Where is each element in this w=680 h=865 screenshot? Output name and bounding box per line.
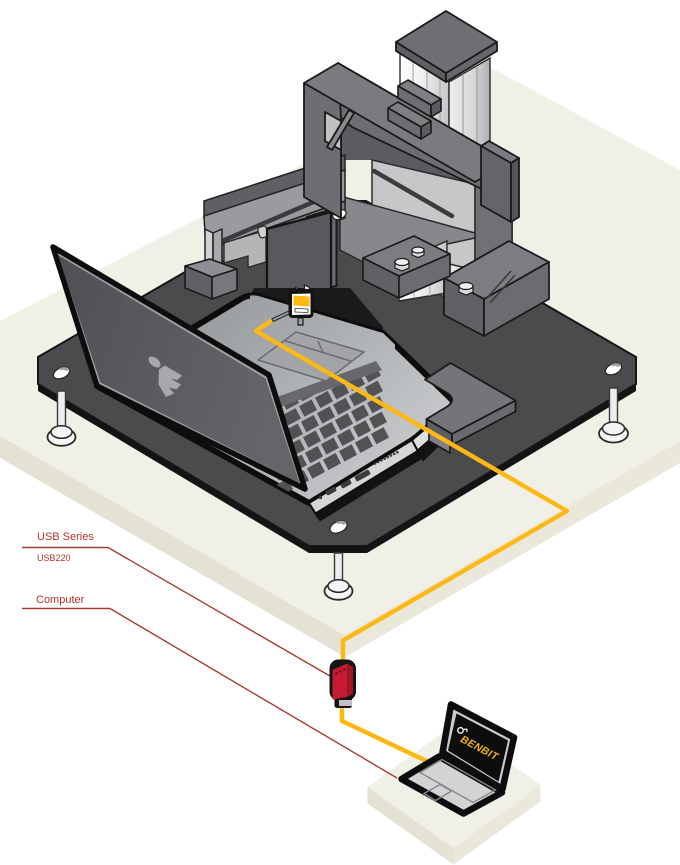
svg-text:USB220: USB220 [37, 553, 71, 563]
svg-text:Computer: Computer [36, 594, 85, 606]
svg-text:USB Series: USB Series [37, 531, 94, 543]
